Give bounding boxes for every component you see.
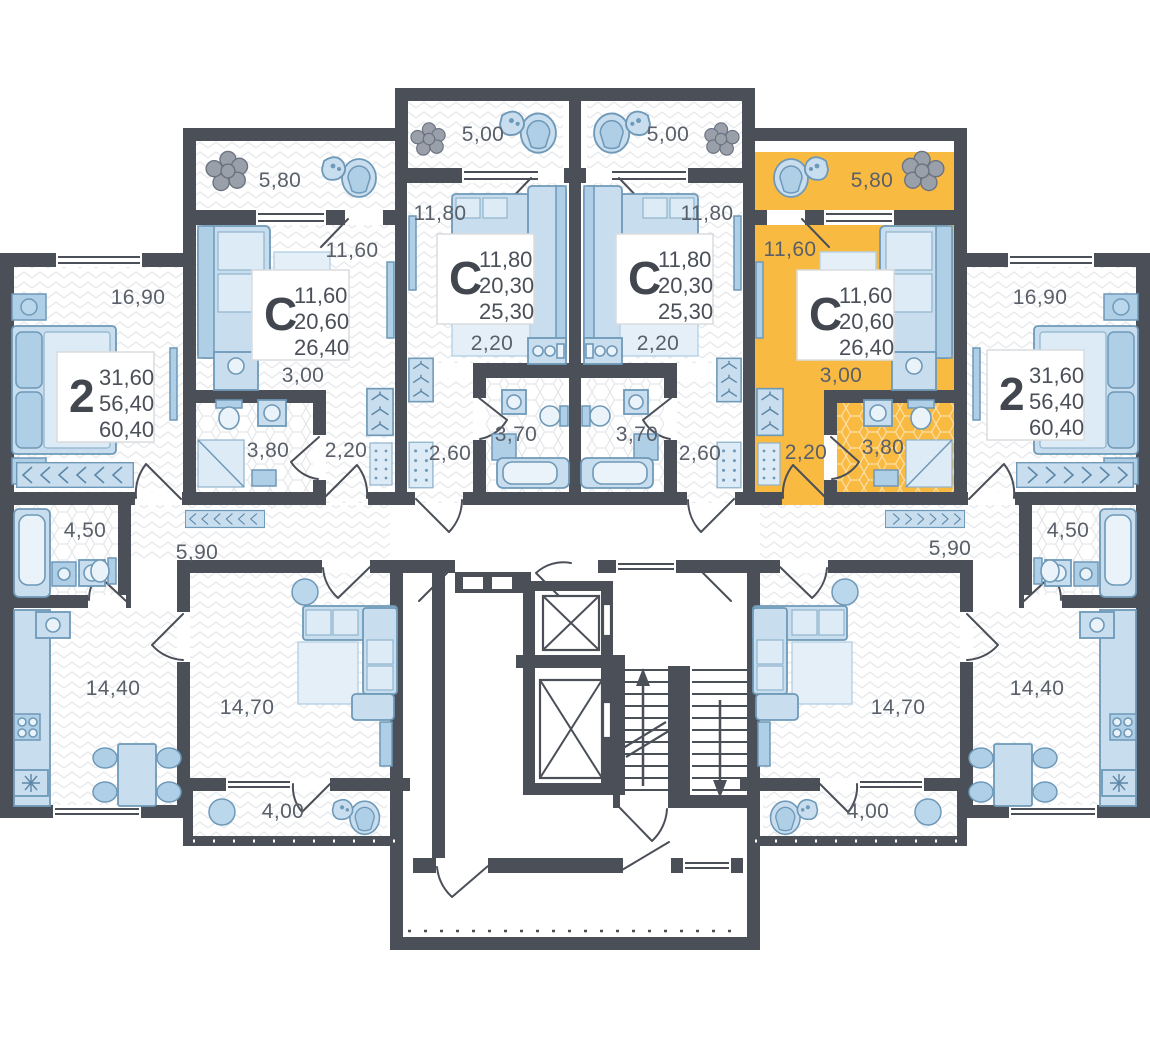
room-area-label: 4,50 <box>1047 519 1089 542</box>
apartment-area-value: 60,40 <box>99 417 154 442</box>
room-area-label: 2,20 <box>785 441 827 464</box>
room-area-label: 14,70 <box>871 696 926 719</box>
room-area-label: 3,00 <box>820 364 862 387</box>
room-area-label: 3,80 <box>862 436 904 459</box>
apartment-type-label: С <box>809 288 842 340</box>
elevator-stair-core <box>540 596 748 798</box>
room-area-label: 11,60 <box>764 238 817 261</box>
apartment-type-label: С <box>264 288 297 340</box>
apartment-type-label: С <box>449 252 482 304</box>
apartment-type-label: 2 <box>69 370 95 422</box>
room-area-label: 4,50 <box>64 519 106 542</box>
room-area-label: 11,80 <box>681 202 734 225</box>
apartment-area-value: 26,40 <box>294 335 349 360</box>
room-area-label: 11,60 <box>326 239 379 262</box>
apartment-card[interactable]: С11,8020,3025,30 <box>616 234 713 324</box>
apartment-area-value: 11,60 <box>294 283 347 308</box>
apartment-area-value: 11,80 <box>479 247 532 272</box>
floor-plan: 5,805,005,005,8016,9011,6011,8011,8011,6… <box>0 0 1150 1040</box>
room-area-label: 5,90 <box>176 541 218 564</box>
room-area-label: 2,60 <box>429 442 471 465</box>
apartment-type-label: 2 <box>999 368 1025 420</box>
apartment-card-highlighted[interactable]: С11,6020,6026,40 <box>797 270 894 360</box>
room-area-label: 11,80 <box>414 202 467 225</box>
apartment-area-value: 20,60 <box>839 309 894 334</box>
apartment-area-value: 31,60 <box>99 365 154 390</box>
apartment-area-value: 25,30 <box>479 299 534 324</box>
room-area-label: 3,00 <box>282 364 324 387</box>
elevator-shaft-small-icon <box>543 596 611 650</box>
room-area-label: 14,40 <box>1010 677 1065 700</box>
apartment-card[interactable]: 231,6056,4060,40 <box>57 352 154 442</box>
room-area-label: 5,00 <box>647 123 689 146</box>
room-area-label: 3,80 <box>247 439 289 462</box>
apartment-area-value: 26,40 <box>839 335 894 360</box>
room-area-label: 5,00 <box>462 123 504 146</box>
apartment-area-value: 20,30 <box>479 273 534 298</box>
room-area-label: 16,90 <box>111 286 166 309</box>
room-area-label: 5,80 <box>259 169 301 192</box>
room-area-label: 4,00 <box>847 800 889 823</box>
apartment-area-value: 20,30 <box>658 273 713 298</box>
floor-plan-page: 5,805,005,005,8016,9011,6011,8011,8011,6… <box>0 0 1150 1040</box>
apartment-card[interactable]: С11,6020,6026,40 <box>252 270 349 360</box>
apartment-area-value: 20,60 <box>294 309 349 334</box>
apartment-area-value: 56,40 <box>1029 389 1084 414</box>
apartment-area-value: 11,80 <box>658 247 711 272</box>
apartment-area-value: 56,40 <box>99 391 154 416</box>
room-area-label: 4,00 <box>262 800 304 823</box>
room-area-label: 2,20 <box>325 439 367 462</box>
apartment-card[interactable]: 231,6056,4060,40 <box>987 350 1084 440</box>
room-area-label: 3,70 <box>495 423 537 446</box>
apartment-area-value: 60,40 <box>1029 415 1084 440</box>
room-area-label: 2,20 <box>637 332 679 355</box>
apartment-area-value: 31,60 <box>1029 363 1084 388</box>
room-area-label: 2,20 <box>471 332 513 355</box>
room-area-label: 14,40 <box>86 677 141 700</box>
apartment-type-label: С <box>628 252 661 304</box>
room-area-label: 16,90 <box>1013 286 1068 309</box>
room-area-label: 3,70 <box>616 423 658 446</box>
apartment-card[interactable]: С11,8020,3025,30 <box>437 234 534 324</box>
apartment-area-value: 11,60 <box>839 283 892 308</box>
apartment-area-value: 25,30 <box>658 299 713 324</box>
room-area-label: 5,90 <box>929 537 971 560</box>
elevator-shaft-large-icon <box>540 680 611 778</box>
room-area-label: 5,80 <box>851 169 893 192</box>
room-area-label: 14,70 <box>220 696 275 719</box>
room-area-label: 2,60 <box>679 442 721 465</box>
